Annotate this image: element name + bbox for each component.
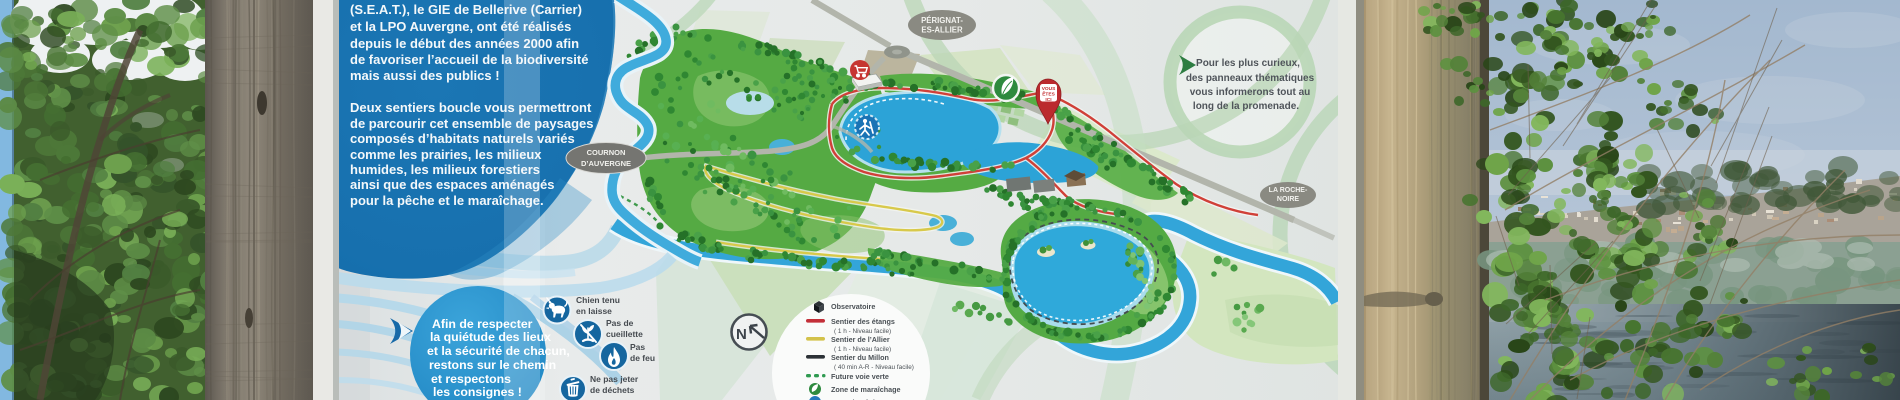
- svg-text:cueillette: cueillette: [606, 329, 643, 339]
- svg-text:VOUS: VOUS: [1042, 86, 1056, 92]
- svg-text:( 1 h - Niveau facile): ( 1 h - Niveau facile): [834, 346, 891, 353]
- svg-text:des panneaux thématiques: des panneaux thématiques: [1186, 73, 1315, 84]
- svg-text:Chien tenu: Chien tenu: [576, 295, 620, 305]
- svg-text:en laisse: en laisse: [576, 306, 612, 316]
- svg-text:Ne pas jeter: Ne pas jeter: [590, 374, 639, 384]
- svg-text:mais aussi des publics !: mais aussi des publics !: [350, 68, 500, 83]
- svg-text:vous informerons tout au: vous informerons tout au: [1190, 87, 1311, 98]
- svg-text:PÉRIGNAT-: PÉRIGNAT-: [921, 16, 963, 25]
- svg-text:de parcourir cet ensemble de p: de parcourir cet ensemble de paysages: [350, 116, 594, 131]
- svg-text:NOIRE: NOIRE: [1277, 196, 1300, 203]
- svg-text:LA ROCHE-: LA ROCHE-: [1269, 187, 1308, 194]
- svg-text:et la sécurité de chacun,: et la sécurité de chacun,: [427, 344, 570, 358]
- svg-text:( 1 h - Niveau facile): ( 1 h - Niveau facile): [834, 328, 891, 335]
- svg-text:Pas: Pas: [630, 342, 645, 352]
- svg-text:N: N: [736, 326, 747, 343]
- svg-text:(S.E.A.T.), le GIE de Belleriv: (S.E.A.T.), le GIE de Bellerive (Carrier…: [350, 2, 582, 17]
- svg-text:Sentier du Millon: Sentier du Millon: [831, 353, 889, 362]
- svg-text:Sentier de l’Allier: Sentier de l’Allier: [831, 335, 890, 344]
- svg-text:de favoriser l’accueil de la b: de favoriser l’accueil de la biodiversit…: [350, 52, 588, 67]
- svg-text:COURNON: COURNON: [587, 148, 626, 157]
- svg-text:Zone de maraîchage: Zone de maraîchage: [831, 385, 901, 394]
- svg-text:ES-ALLIER: ES-ALLIER: [921, 26, 963, 35]
- svg-text:D’AUVERGNE: D’AUVERGNE: [581, 159, 631, 168]
- svg-text:Pour les plus curieux,: Pour les plus curieux,: [1196, 58, 1300, 69]
- svg-text:( 40 min A-R - Niveau facile): ( 40 min A-R - Niveau facile): [834, 364, 914, 371]
- svg-text:de déchets: de déchets: [590, 385, 635, 395]
- svg-text:et respectons: et respectons: [431, 372, 511, 386]
- svg-text:Observatoire: Observatoire: [831, 302, 875, 311]
- svg-text:Pas de: Pas de: [606, 318, 634, 328]
- svg-text:Sentier des étangs: Sentier des étangs: [831, 317, 895, 326]
- svg-text:de feu: de feu: [630, 353, 655, 363]
- svg-text:depuis le début des années 200: depuis le début des années 2000 afin: [350, 36, 579, 51]
- svg-text:long de la promenade.: long de la promenade.: [1193, 101, 1299, 112]
- svg-text:Deux sentiers boucle vous perm: Deux sentiers boucle vous permettront: [350, 100, 592, 115]
- svg-text:ICI: ICI: [1045, 97, 1052, 103]
- svg-text:composés d’habitats naturels v: composés d’habitats naturels variés: [350, 131, 575, 146]
- svg-text:Future voie verte: Future voie verte: [831, 372, 889, 381]
